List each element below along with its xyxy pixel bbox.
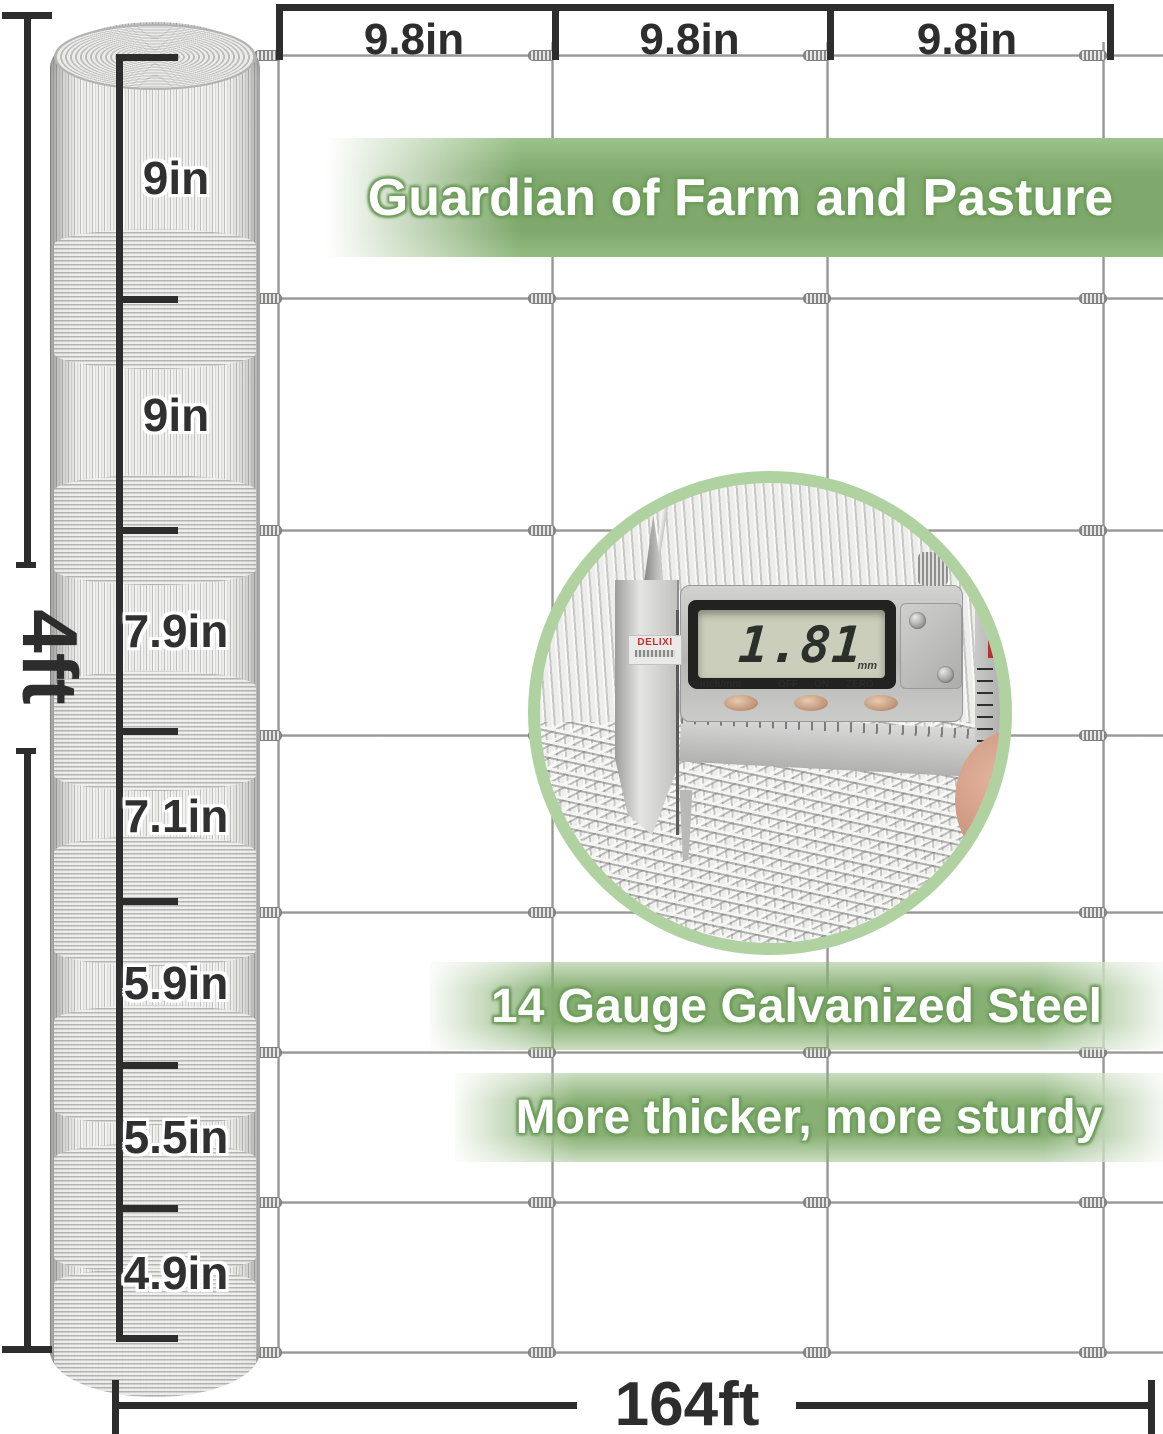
- length-label: 164ft: [572, 1374, 802, 1434]
- length-bracket-line-right: [796, 1402, 1155, 1409]
- product-infographic: Guardian of Farm and Pasture 14 Gauge Ga…: [0, 0, 1163, 1434]
- length-bracket: 164ft: [0, 0, 1163, 1434]
- length-bracket-line-left: [115, 1402, 577, 1409]
- length-bracket-right-tick: [1148, 1380, 1155, 1434]
